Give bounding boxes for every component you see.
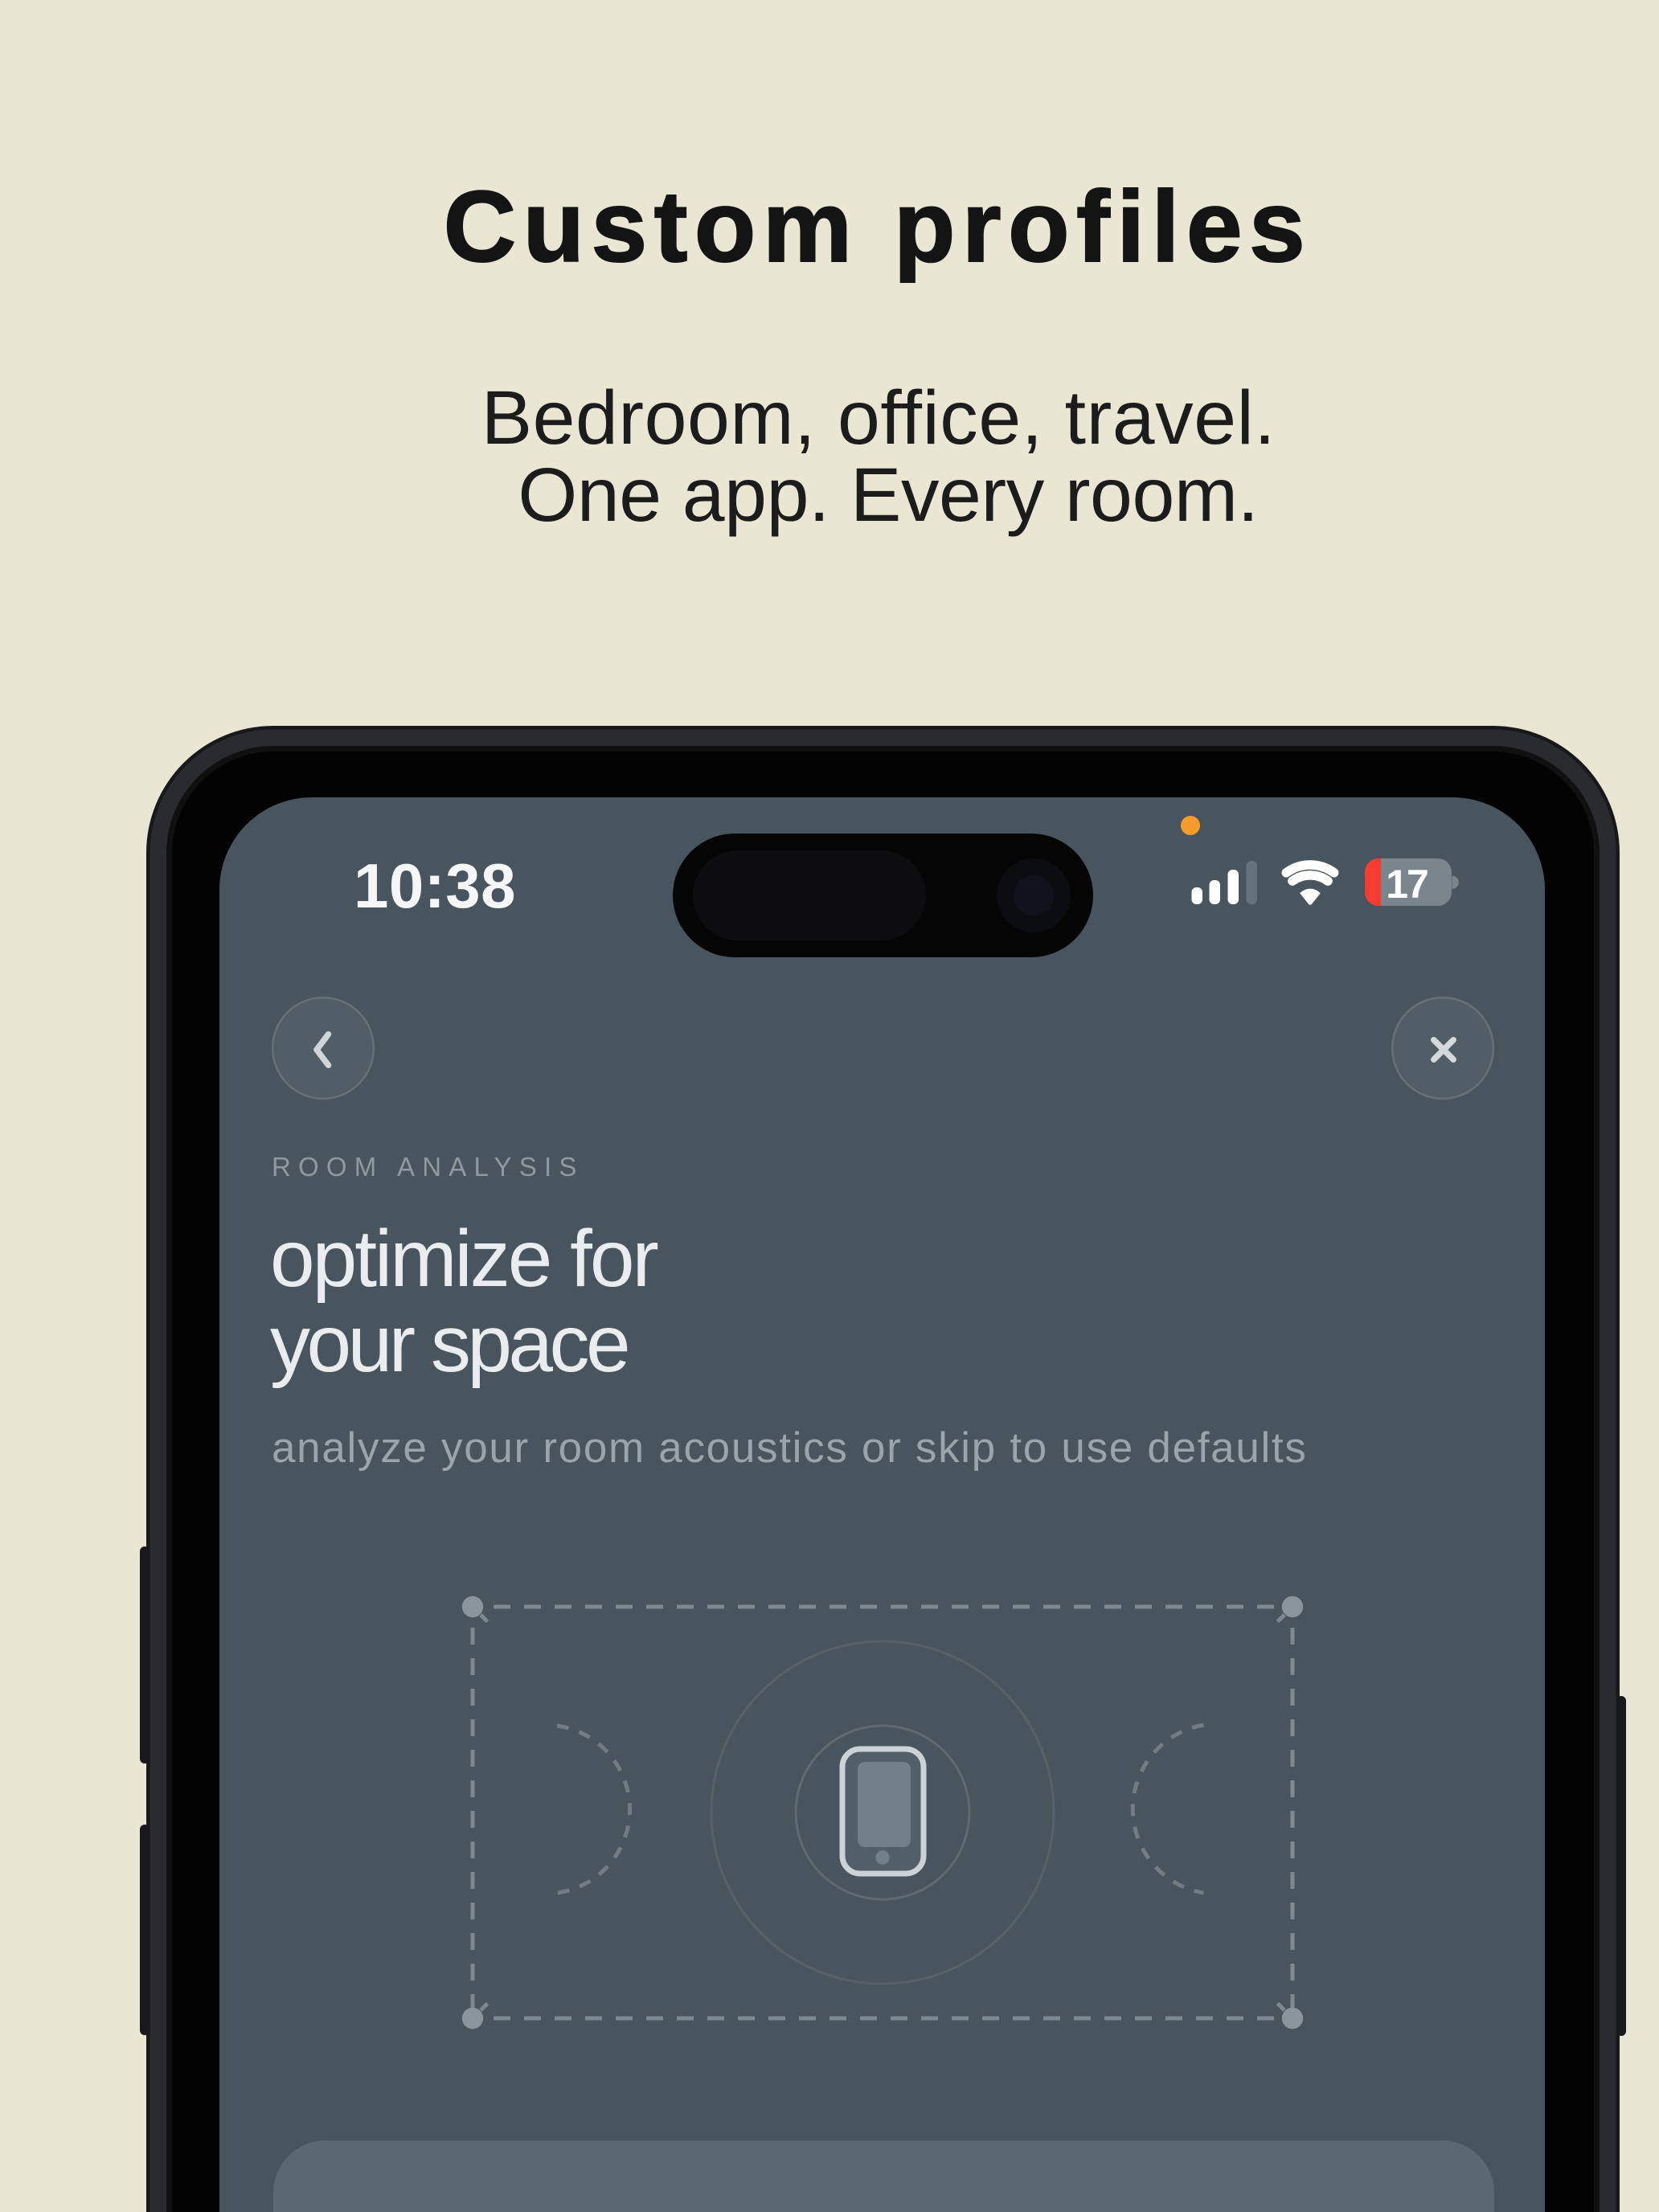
svg-text:17: 17	[1386, 862, 1428, 907]
svg-text:Custom profiles: Custom profiles	[444, 171, 1312, 283]
svg-text:ROOM ANALYSIS: ROOM ANALYSIS	[272, 1152, 584, 1182]
svg-text:optimize for: optimize for	[270, 1214, 658, 1304]
svg-text:One app. Every room.: One app. Every room.	[518, 453, 1258, 538]
svg-text:analyze your room acoustics or: analyze your room acoustics or skip to u…	[272, 1424, 1308, 1472]
svg-text:your space: your space	[270, 1299, 628, 1389]
svg-text:10:38: 10:38	[354, 850, 516, 921]
svg-text:Bedroom, office, travel.: Bedroom, office, travel.	[481, 375, 1276, 461]
